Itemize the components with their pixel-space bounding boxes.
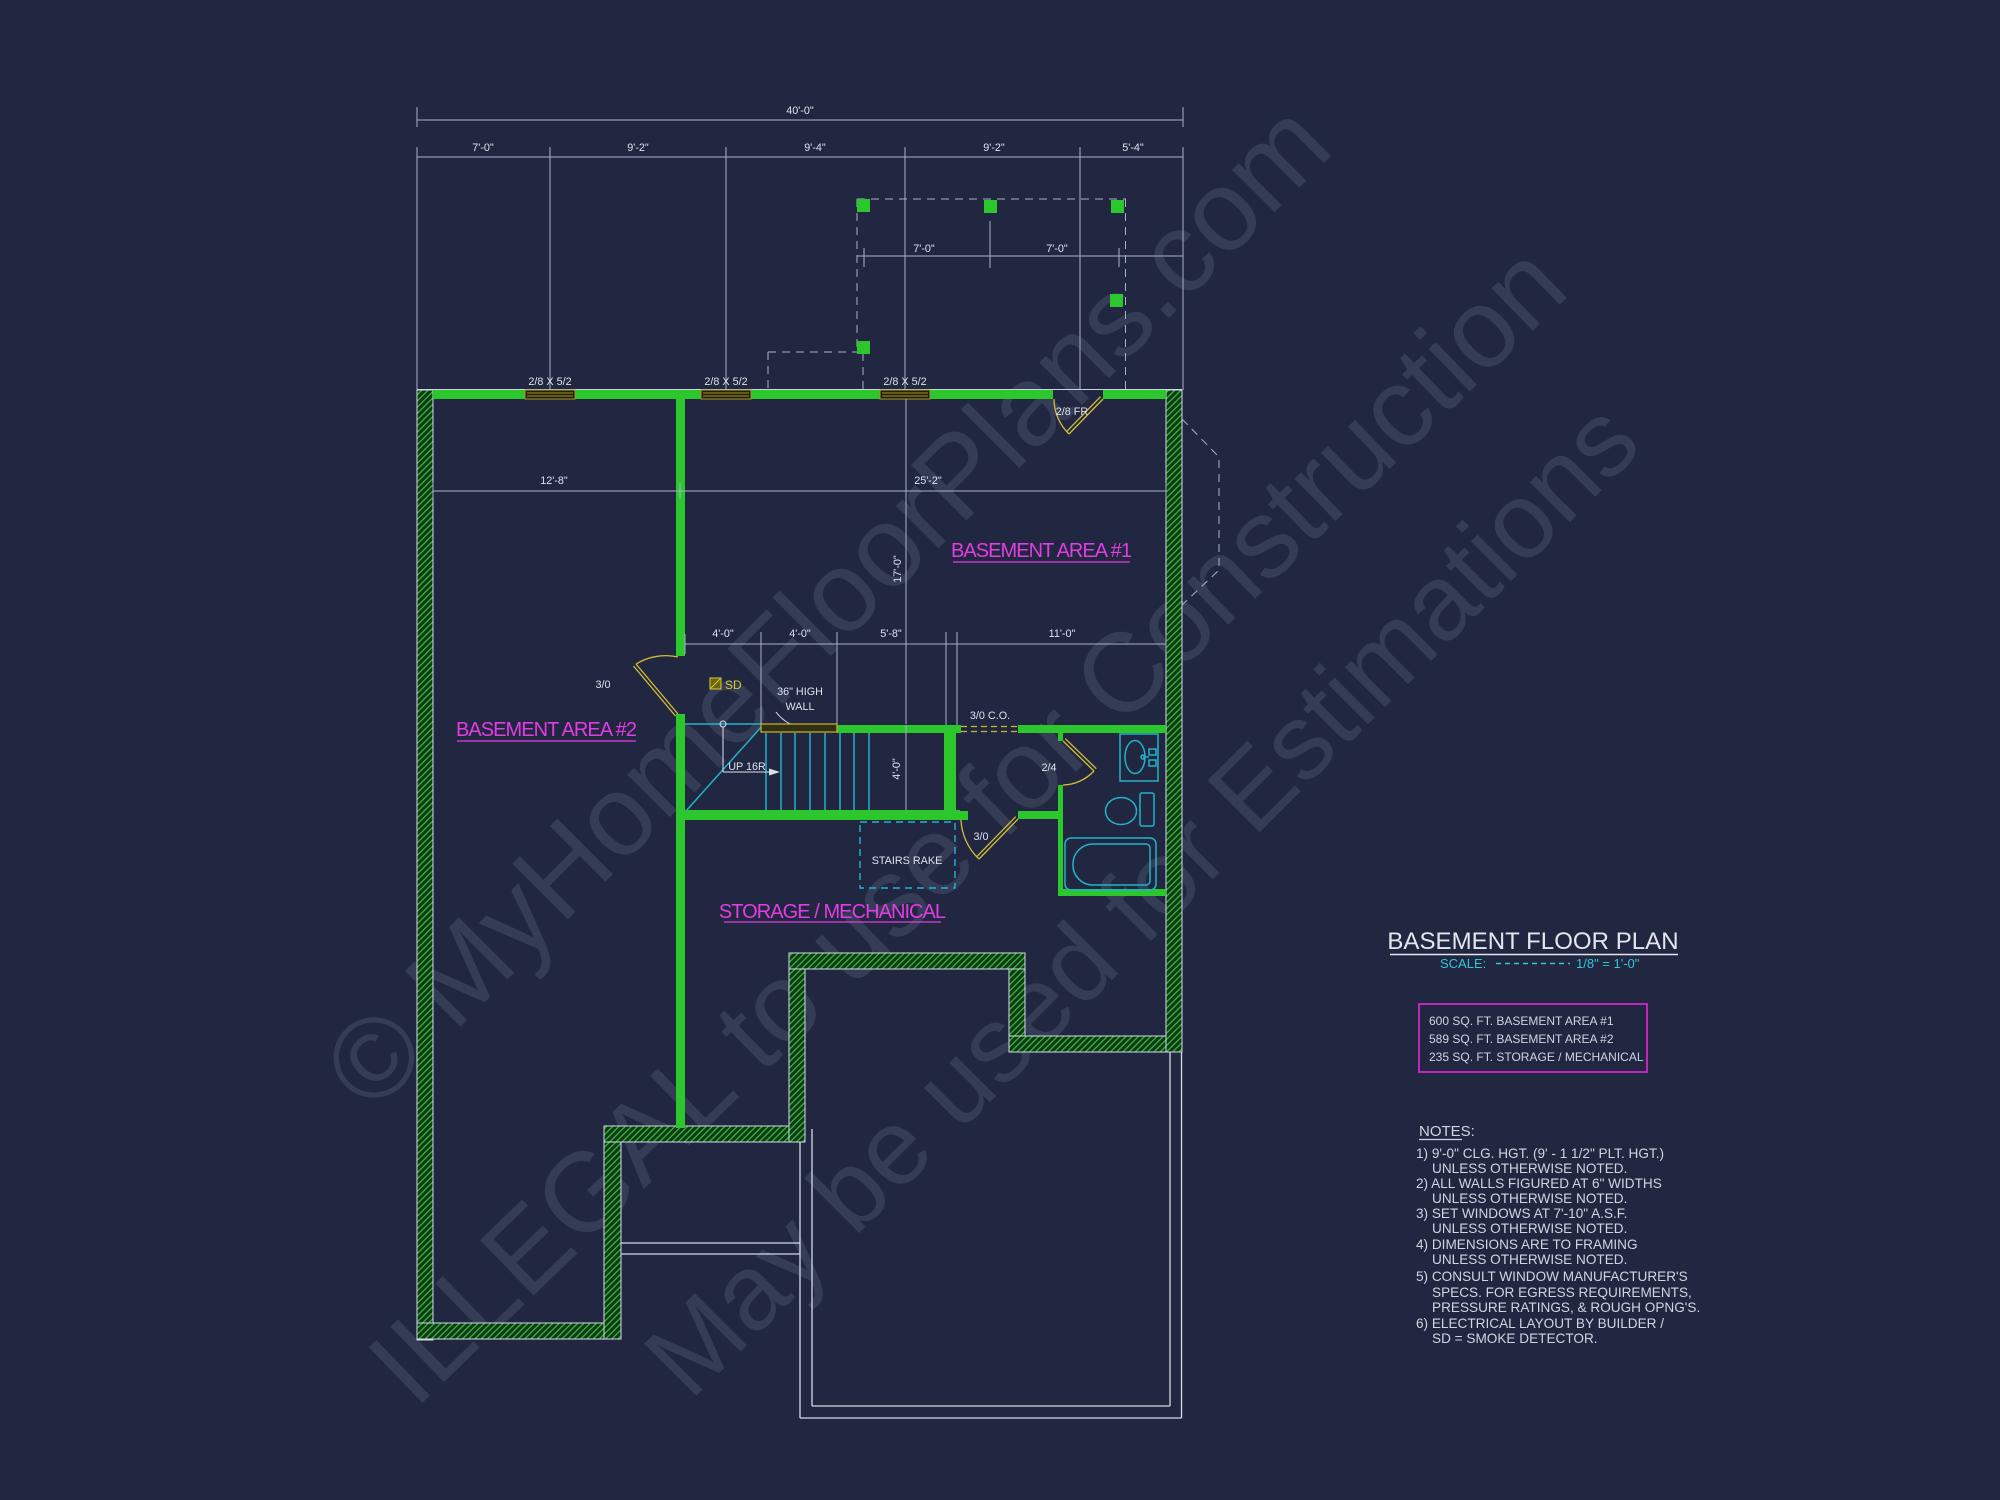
svg-text:7'-0": 7'-0" [1046,243,1068,255]
svg-text:BASEMENT AREA #1: BASEMENT AREA #1 [951,540,1132,562]
svg-text:UNLESS OTHERWISE NOTED.: UNLESS OTHERWISE NOTED. [1432,1191,1627,1206]
svg-text:1/8" = 1'-0": 1/8" = 1'-0" [1576,956,1640,971]
svg-text:600 SQ. FT. BASEMENT AREA #1: 600 SQ. FT. BASEMENT AREA #1 [1429,1014,1614,1028]
svg-text:7'-0": 7'-0" [472,142,494,154]
svg-text:5'-4": 5'-4" [1122,142,1144,154]
svg-text:3/0: 3/0 [595,679,610,691]
svg-text:5) CONSULT WINDOW MANUFACTURER: 5) CONSULT WINDOW MANUFACTURER'S [1416,1269,1688,1284]
svg-text:4'-0": 4'-0" [712,628,734,640]
svg-text:2/4: 2/4 [1041,762,1056,774]
svg-text:4'-0": 4'-0" [891,758,903,780]
svg-text:2/8 X 5/2: 2/8 X 5/2 [883,376,926,388]
svg-text:9'-2": 9'-2" [627,142,649,154]
svg-text:25'-2": 25'-2" [914,475,942,487]
svg-text:11'-0": 11'-0" [1049,628,1076,640]
svg-text:3) SET WINDOWS AT 7'-10" A.S.F: 3) SET WINDOWS AT 7'-10" A.S.F. [1416,1206,1627,1221]
svg-text:40'-0": 40'-0" [786,105,814,117]
svg-text:SD: SD [725,678,742,692]
svg-text:2/8 X 5/2: 2/8 X 5/2 [704,376,747,388]
svg-text:NOTES:: NOTES: [1419,1123,1475,1140]
svg-text:SPECS. FOR EGRESS REQUIREMENTS: SPECS. FOR EGRESS REQUIREMENTS, [1432,1285,1692,1300]
svg-text:SD = SMOKE DETECTOR.: SD = SMOKE DETECTOR. [1432,1331,1598,1346]
svg-text:3/0: 3/0 [973,831,988,843]
svg-text:3/0 C.O.: 3/0 C.O. [970,710,1010,722]
svg-text:36" HIGH: 36" HIGH [777,686,823,698]
svg-text:589 SQ. FT. BASEMENT AREA #2: 589 SQ. FT. BASEMENT AREA #2 [1429,1032,1614,1046]
svg-text:BASEMENT AREA #2: BASEMENT AREA #2 [456,719,637,741]
svg-text:UP 16R: UP 16R [728,761,766,773]
svg-text:2/8 FR: 2/8 FR [1056,406,1089,418]
svg-text:SCALE:: SCALE: [1440,956,1486,971]
svg-text:STORAGE / MECHANICAL: STORAGE / MECHANICAL [719,901,946,923]
svg-text:BASEMENT FLOOR PLAN: BASEMENT FLOOR PLAN [1387,928,1678,955]
svg-text:4) DIMENSIONS ARE TO FRAMING: 4) DIMENSIONS ARE TO FRAMING [1416,1237,1638,1252]
svg-text:235 SQ. FT. STORAGE / MECHANIC: 235 SQ. FT. STORAGE / MECHANICAL [1429,1050,1644,1064]
svg-text:2/8 X 5/2: 2/8 X 5/2 [528,376,571,388]
svg-text:6) ELECTRICAL LAYOUT BY BUILDE: 6) ELECTRICAL LAYOUT BY BUILDER / [1416,1316,1664,1331]
svg-text:5'-8": 5'-8" [880,628,902,640]
svg-text:1) 9'-0" CLG. HGT. (9' - 1 1/: 1) 9'-0" CLG. HGT. (9' - 1 1/2" PLT. HGT… [1416,1146,1664,1161]
svg-text:9'-2": 9'-2" [983,142,1005,154]
svg-text:4'-0": 4'-0" [789,628,811,640]
svg-text:STAIRS RAKE: STAIRS RAKE [872,855,943,867]
svg-text:9'-4": 9'-4" [804,142,826,154]
svg-text:UNLESS OTHERWISE NOTED.: UNLESS OTHERWISE NOTED. [1432,1221,1627,1236]
svg-text:UNLESS OTHERWISE NOTED.: UNLESS OTHERWISE NOTED. [1432,1161,1627,1176]
svg-text:UNLESS OTHERWISE NOTED.: UNLESS OTHERWISE NOTED. [1432,1252,1627,1267]
svg-text:17'-0": 17'-0" [892,555,904,583]
svg-text:WALL: WALL [785,701,814,713]
svg-text:2) ALL WALLS FIGURED AT 6" WI: 2) ALL WALLS FIGURED AT 6" WIDTHS [1416,1176,1662,1191]
svg-text:PRESSURE RATINGS, & ROUGH OPNG: PRESSURE RATINGS, & ROUGH OPNG'S. [1432,1300,1700,1315]
svg-text:7'-0": 7'-0" [913,243,935,255]
svg-text:12'-8": 12'-8" [540,475,568,487]
